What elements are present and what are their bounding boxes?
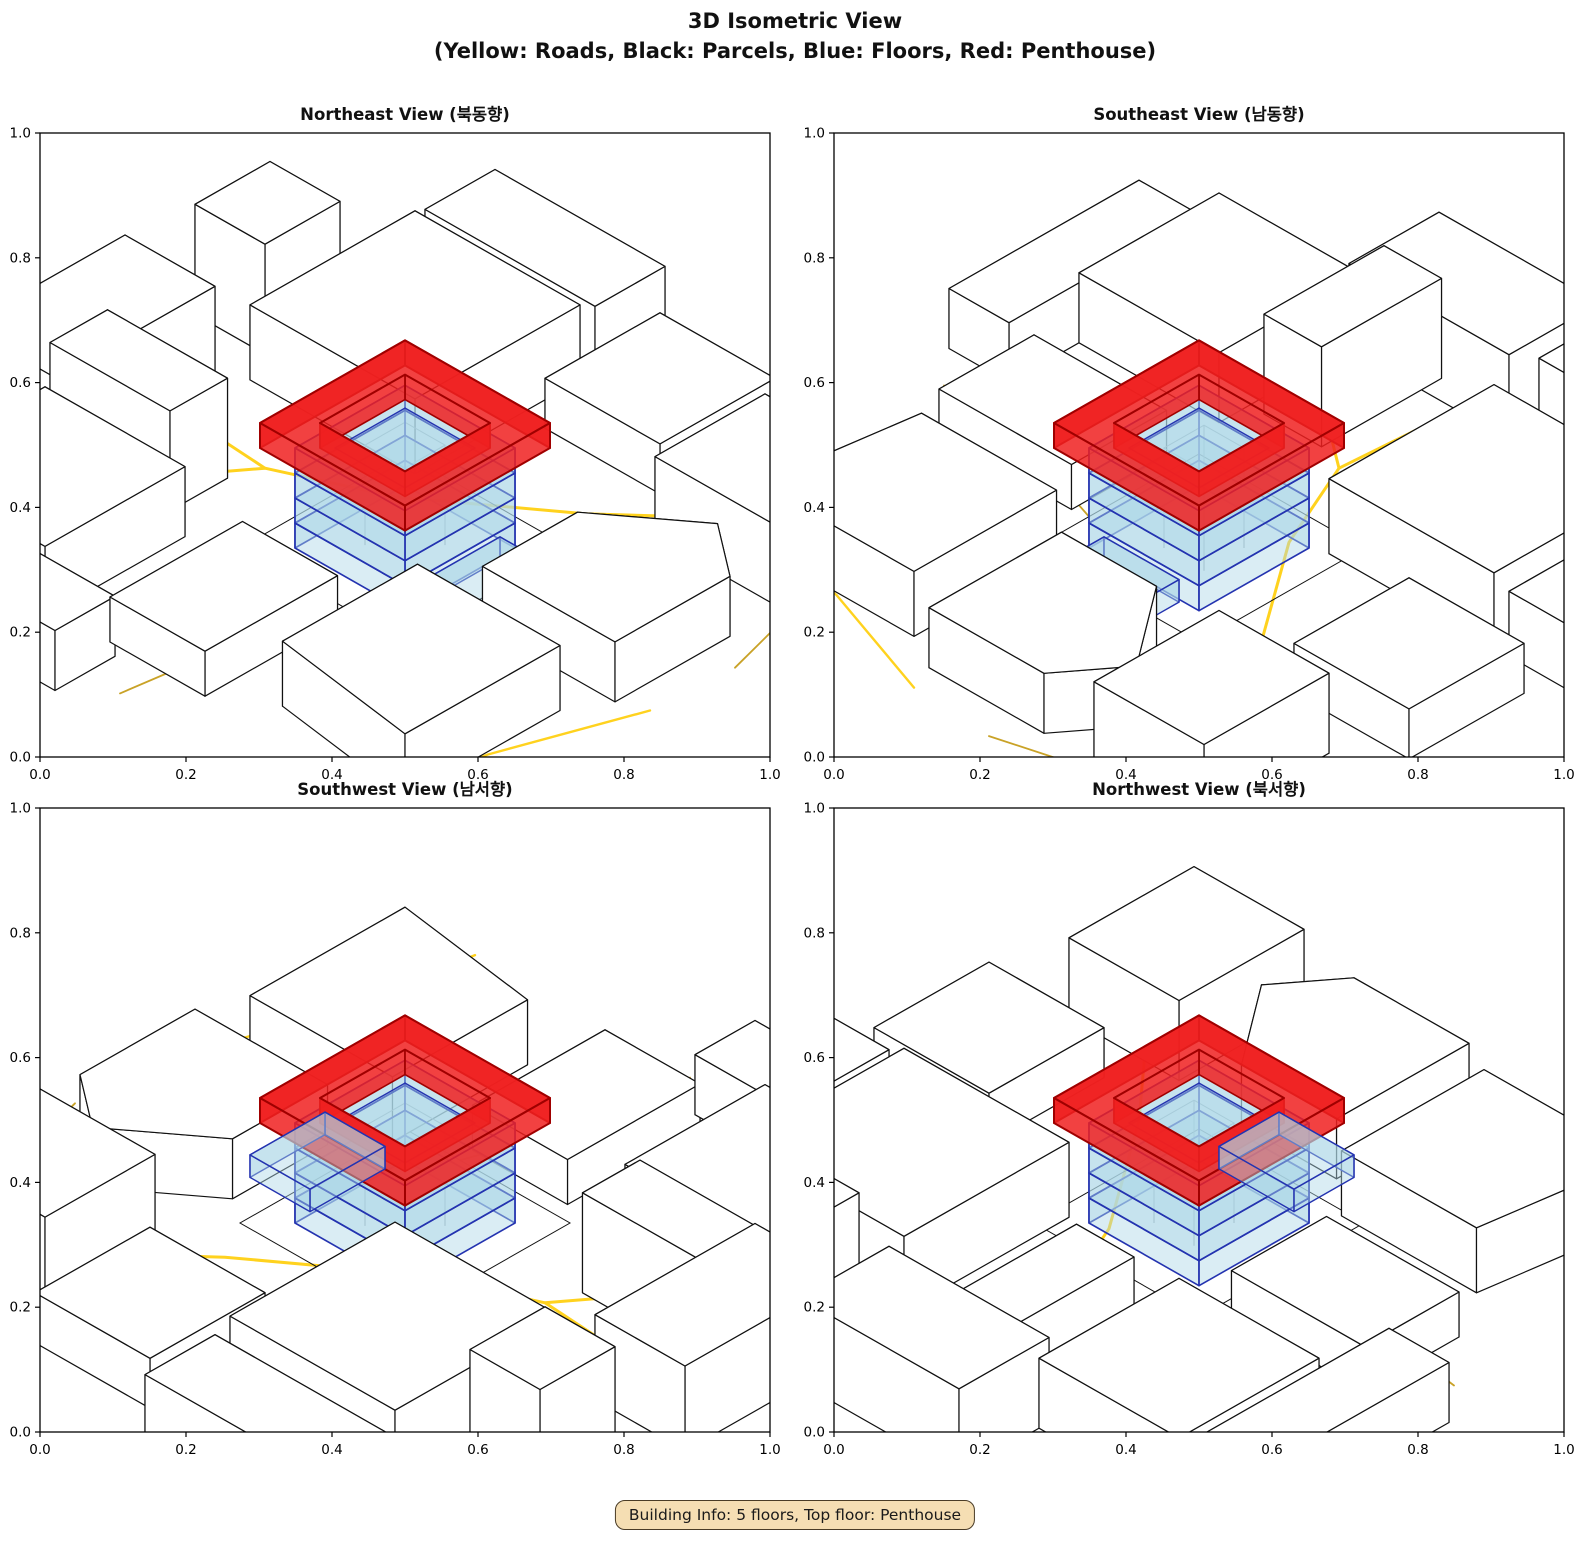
svg-text:0.6: 0.6 xyxy=(804,1050,825,1066)
svg-text:0.8: 0.8 xyxy=(613,1442,634,1458)
svg-text:0.4: 0.4 xyxy=(1115,767,1136,783)
svg-text:0.2: 0.2 xyxy=(804,625,825,641)
svg-text:0.4: 0.4 xyxy=(804,500,825,516)
scene-southeast xyxy=(789,133,1579,793)
svg-text:0.2: 0.2 xyxy=(10,625,31,641)
svg-text:0.2: 0.2 xyxy=(175,1442,196,1458)
svg-text:0.8: 0.8 xyxy=(10,925,31,941)
svg-text:0.6: 0.6 xyxy=(804,375,825,391)
subplot-title-northeast: Northeast View (북동향) xyxy=(40,101,770,125)
svg-text:1.0: 1.0 xyxy=(804,801,825,817)
svg-text:0.6: 0.6 xyxy=(10,375,31,391)
figure-title-line2: (Yellow: Roads, Black: Parcels, Blue: Fl… xyxy=(0,36,1590,66)
building-info-annotation: Building Info: 5 floors, Top floor: Pent… xyxy=(615,1500,975,1530)
scene-northwest xyxy=(789,808,1579,1468)
svg-text:0.0: 0.0 xyxy=(10,750,31,766)
svg-text:0.2: 0.2 xyxy=(175,767,196,783)
svg-text:0.0: 0.0 xyxy=(823,1442,844,1458)
svg-text:1.0: 1.0 xyxy=(804,126,825,142)
svg-text:1.0: 1.0 xyxy=(1553,767,1574,783)
svg-text:1.0: 1.0 xyxy=(759,767,780,783)
svg-text:0.0: 0.0 xyxy=(823,767,844,783)
svg-text:0.6: 0.6 xyxy=(10,1050,31,1066)
svg-text:0.2: 0.2 xyxy=(804,1300,825,1316)
svg-text:1.0: 1.0 xyxy=(10,801,31,817)
figure-title-line1: 3D Isometric View xyxy=(0,6,1590,36)
svg-text:0.8: 0.8 xyxy=(804,250,825,266)
plot-northeast-view: 0.00.00.20.20.40.40.60.60.80.81.01.0 xyxy=(0,125,785,793)
svg-text:1.0: 1.0 xyxy=(759,1442,780,1458)
svg-text:0.8: 0.8 xyxy=(804,925,825,941)
svg-text:0.4: 0.4 xyxy=(10,500,31,516)
svg-text:0.6: 0.6 xyxy=(467,767,488,783)
svg-text:0.8: 0.8 xyxy=(10,250,31,266)
svg-text:1.0: 1.0 xyxy=(1553,1442,1574,1458)
svg-text:0.4: 0.4 xyxy=(1115,1442,1136,1458)
svg-text:0.2: 0.2 xyxy=(969,1442,990,1458)
figure-title: 3D Isometric View (Yellow: Roads, Black:… xyxy=(0,6,1590,67)
svg-text:0.4: 0.4 xyxy=(321,1442,342,1458)
svg-text:0.6: 0.6 xyxy=(467,1442,488,1458)
svg-text:0.4: 0.4 xyxy=(321,767,342,783)
svg-text:0.6: 0.6 xyxy=(1261,1442,1282,1458)
svg-text:0.6: 0.6 xyxy=(1261,767,1282,783)
svg-text:0.0: 0.0 xyxy=(29,1442,50,1458)
svg-text:0.0: 0.0 xyxy=(804,750,825,766)
svg-text:0.0: 0.0 xyxy=(10,1425,31,1441)
svg-text:0.2: 0.2 xyxy=(969,767,990,783)
svg-text:0.4: 0.4 xyxy=(804,1175,825,1191)
svg-text:0.8: 0.8 xyxy=(613,767,634,783)
subplot-title-southeast: Southeast View (남동향) xyxy=(834,101,1564,125)
plot-northwest-view: 0.00.00.20.20.40.40.60.60.80.81.01.0 xyxy=(789,800,1579,1468)
svg-text:0.0: 0.0 xyxy=(804,1425,825,1441)
svg-text:0.0: 0.0 xyxy=(29,767,50,783)
svg-text:0.8: 0.8 xyxy=(1407,1442,1428,1458)
scene-northeast xyxy=(0,133,785,793)
scene-southwest xyxy=(0,808,785,1468)
svg-text:0.2: 0.2 xyxy=(10,1300,31,1316)
svg-text:1.0: 1.0 xyxy=(10,126,31,142)
plot-southwest-view: 0.00.00.20.20.40.40.60.60.80.81.01.0 xyxy=(0,800,785,1468)
svg-text:0.8: 0.8 xyxy=(1407,767,1428,783)
svg-text:0.4: 0.4 xyxy=(10,1175,31,1191)
plot-southeast-view: 0.00.00.20.20.40.40.60.60.80.81.01.0 xyxy=(789,125,1579,793)
